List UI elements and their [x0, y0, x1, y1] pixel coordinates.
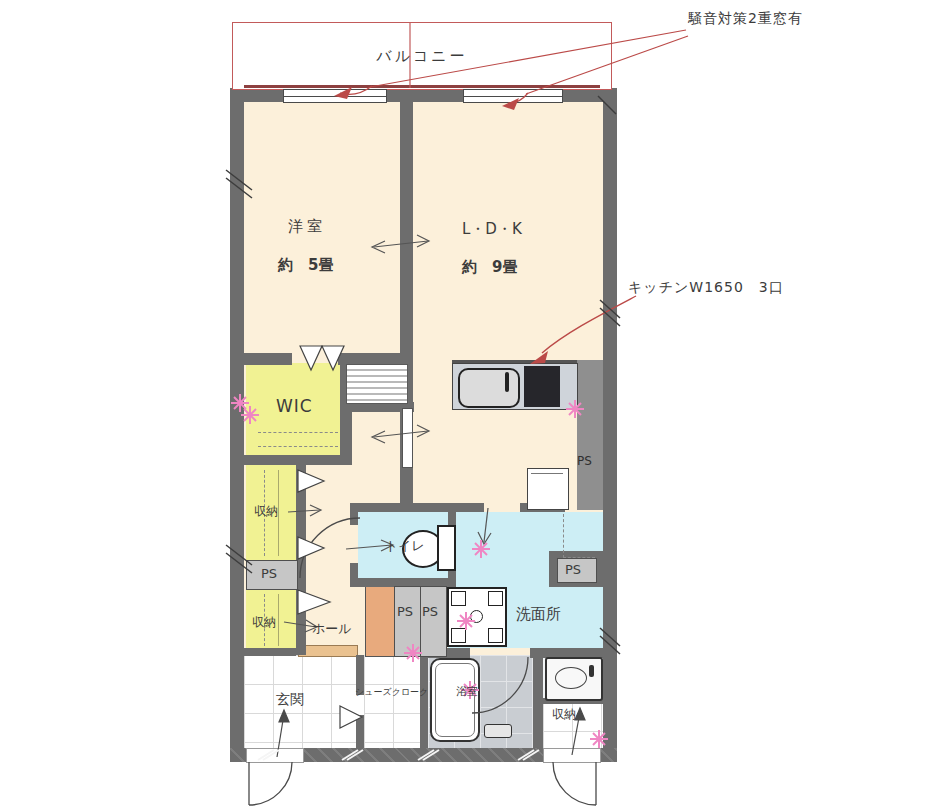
kitchen-stove-icon: [524, 366, 560, 407]
note-double-window: 騒音対策2重窓有: [688, 10, 803, 28]
wic-rail-dash-b: [258, 446, 338, 447]
shoe-closet-floor: [364, 655, 420, 748]
ps-label-right: PS: [565, 563, 581, 576]
wall-bottom-b: [302, 748, 543, 762]
wall-top-b: [385, 88, 463, 102]
entry-door-sill-left: [246, 748, 304, 763]
wall-bottom-c: [599, 748, 617, 762]
sliding-door-panel: [402, 408, 413, 468]
bathroom-label: 浴室: [456, 686, 478, 697]
window-west-room: [283, 89, 387, 103]
kitchen-sink-icon: [458, 368, 520, 408]
wall-wic-bottom: [244, 455, 352, 465]
wall-storage-bottom: [244, 648, 296, 656]
ps-label-mid-a: PS: [397, 605, 413, 618]
wall-entrance-shoe-b: [356, 715, 364, 748]
shower-fixture-icon: [484, 724, 512, 738]
storage-low-line: [278, 594, 279, 646]
entrance-label: 玄関: [276, 692, 304, 706]
bathtub-icon: [430, 658, 480, 742]
entry-door-sill-right: [543, 748, 601, 763]
fridge-handle-line: [531, 473, 563, 474]
wall-right: [603, 88, 617, 762]
storage-mid-line: [278, 470, 279, 556]
toilet-tank-icon: [437, 525, 456, 571]
washbasin-icon: [545, 657, 603, 701]
wic-label: WIC: [276, 398, 313, 415]
ps-box-center-b: [420, 586, 447, 657]
balcony-edge-line: [244, 85, 600, 88]
storage-mid-label: 収納: [254, 505, 278, 517]
storage-entry-label: 収納: [552, 708, 576, 720]
wall-wic-top-a: [244, 353, 292, 365]
kitchen-faucet-icon: [505, 372, 509, 392]
wall-bottom-a: [230, 748, 246, 762]
storage-low-label: 収納: [252, 616, 276, 628]
fridge-space: [527, 468, 569, 510]
balcony-outline: バルコニー: [232, 22, 612, 90]
washroom-dash-v: [563, 514, 564, 558]
wall-left: [230, 88, 244, 762]
wood-panel: [365, 585, 395, 657]
washing-machine-pan-icon: [447, 587, 507, 647]
washroom-label: 洗面所: [516, 607, 561, 622]
wall-toilet-left-a: [350, 503, 358, 525]
ldk-size: 約 9畳: [462, 260, 517, 275]
floor-plan: バルコニー 騒音対策2重窓有 キッチンW1650 3口: [0, 0, 928, 808]
wall-washroom-top-a: [456, 503, 484, 512]
ps-label-left: PS: [261, 567, 277, 580]
western-room-name: 洋室: [288, 219, 326, 234]
balcony-label: バルコニー: [376, 49, 467, 64]
toilet-label: トイレ: [385, 539, 425, 552]
ps-box-center-a: [394, 586, 421, 657]
note-kitchen: キッチンW1650 3口: [628, 279, 784, 297]
shelf-hatch: [346, 364, 408, 404]
ldk-name: L・D・K: [462, 222, 522, 237]
shoe-closet-label: シューズクローク: [355, 688, 428, 697]
hall-label: ホール: [312, 622, 352, 635]
ps-label-mid-b: PS: [422, 605, 438, 618]
ps-label-shaft: PS: [577, 455, 592, 467]
wic-rail-dash-a: [258, 432, 338, 433]
entrance-step: [298, 645, 358, 657]
window-ldk: [463, 89, 563, 103]
wall-shoe-bath: [420, 655, 428, 748]
wall-toilet-top: [350, 503, 456, 512]
ps-shaft: [577, 360, 603, 510]
western-room-size: 約 5畳: [278, 258, 333, 273]
